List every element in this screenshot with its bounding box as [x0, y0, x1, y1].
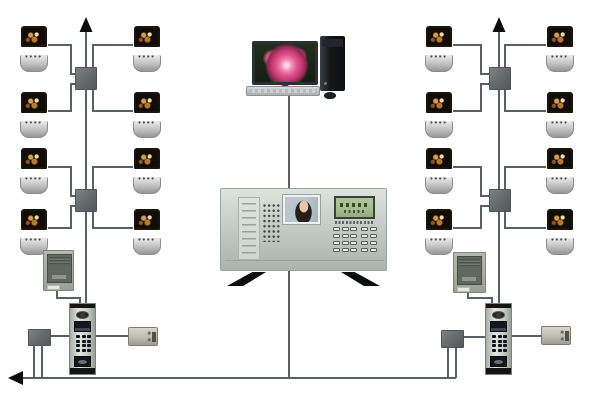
monitor-screen	[21, 148, 47, 169]
card-reader	[490, 356, 507, 367]
monitor-body	[133, 121, 161, 138]
wire-branch	[505, 167, 546, 190]
monitor-screen	[134, 92, 160, 113]
wire-branch	[93, 89, 133, 111]
wire-branch	[453, 84, 490, 111]
wire-branch	[48, 84, 76, 111]
wire-branch	[48, 206, 76, 228]
mouse	[324, 92, 336, 99]
arrow-up-left-riser	[80, 17, 93, 32]
card-reader	[74, 356, 91, 367]
guard-console	[220, 188, 387, 271]
management-computer	[246, 36, 346, 98]
keypad-right-block	[361, 227, 377, 252]
psu-label	[457, 287, 470, 292]
arrow-left-bus	[8, 371, 23, 385]
monitor-screen	[134, 209, 160, 230]
keyboard	[246, 86, 320, 96]
indoor-monitor-unit	[133, 148, 161, 186]
monitor-body	[425, 55, 453, 72]
monitor-body	[546, 121, 574, 138]
wire-branch	[505, 45, 546, 68]
monitor-screen	[426, 209, 452, 230]
monitor-body	[425, 177, 453, 194]
monitor-body	[133, 55, 161, 72]
indoor-monitor-unit	[425, 209, 453, 247]
electric-lock	[128, 327, 158, 346]
monitor-screen	[134, 148, 160, 169]
junction-box	[489, 189, 511, 212]
wire-branch	[453, 167, 490, 196]
monitor-screen	[21, 92, 47, 113]
indoor-monitor-unit	[133, 26, 161, 64]
monitor-body	[425, 238, 453, 255]
monitor-screen	[426, 26, 452, 47]
indoor-monitor-unit	[546, 92, 574, 130]
arrow-up-right-riser	[493, 17, 506, 32]
indoor-monitor-unit	[546, 148, 574, 186]
console-groove	[225, 260, 384, 261]
indoor-monitor-unit	[20, 148, 48, 186]
monitor-body	[133, 238, 161, 255]
monitor-body	[133, 177, 161, 194]
keypad-left-block	[333, 227, 357, 252]
monitor-screen	[21, 26, 47, 47]
wire-branch	[93, 211, 133, 228]
indoor-monitor-unit	[425, 26, 453, 64]
door-station-bottom-strip	[486, 368, 511, 374]
lcd-screen	[336, 198, 373, 217]
entry-junction-box	[28, 329, 51, 346]
monitor-body	[20, 121, 48, 138]
monitor-screen	[134, 26, 160, 47]
electric-lock	[541, 326, 571, 345]
lcd-caption	[335, 221, 374, 224]
door-station-top-strip	[486, 304, 511, 308]
monitor-screen	[547, 209, 573, 230]
indoor-monitor-unit	[20, 209, 48, 247]
indoor-monitor-unit	[20, 26, 48, 64]
monitor-screen	[547, 26, 573, 47]
wire-branch	[453, 206, 490, 228]
camera-lens-icon	[492, 311, 505, 319]
monitor-body	[425, 121, 453, 138]
door-station	[485, 303, 512, 375]
indoor-monitor-unit	[20, 92, 48, 130]
monitor-screen	[426, 92, 452, 113]
door-station-keypad	[75, 335, 92, 352]
wire-branch	[505, 89, 546, 111]
indoor-monitor-unit	[425, 148, 453, 186]
psu-front-panel	[47, 254, 72, 283]
monitor-body	[546, 177, 574, 194]
psu-label	[47, 285, 60, 290]
indoor-monitor-unit	[546, 26, 574, 64]
camera-lens-icon	[76, 311, 89, 319]
console-video-screen	[283, 195, 320, 224]
monitor-screen	[21, 209, 47, 230]
console-label-strip	[238, 197, 260, 260]
speaker-grille	[263, 204, 281, 242]
monitor-screen	[426, 148, 452, 169]
door-station-display	[74, 321, 91, 332]
power-supply-unit	[453, 252, 486, 293]
monitor-body	[20, 177, 48, 194]
wire-branch	[93, 45, 133, 68]
monitor-body	[546, 55, 574, 72]
indoor-monitor-unit	[425, 92, 453, 130]
door-station	[69, 303, 96, 375]
wire-branch	[48, 45, 76, 74]
wire-branch	[453, 45, 490, 74]
indoor-monitor-unit	[133, 92, 161, 130]
console-lcd	[334, 196, 375, 219]
door-station-bottom-strip	[70, 368, 95, 374]
psu-front-panel	[457, 256, 482, 285]
wire-branch	[93, 167, 133, 190]
indoor-monitor-unit	[546, 209, 574, 247]
computer-monitor-rose-wallpaper	[252, 41, 318, 85]
wire-branch	[48, 167, 76, 196]
monitor-body	[546, 238, 574, 255]
junction-box	[75, 67, 97, 90]
indoor-monitor-unit	[133, 209, 161, 247]
power-supply-unit	[43, 250, 74, 291]
monitor-body	[20, 55, 48, 72]
door-station-top-strip	[70, 304, 95, 308]
monitor-screen	[547, 148, 573, 169]
monitor-screen	[547, 92, 573, 113]
entry-junction-box	[441, 330, 464, 348]
intercom-wiring-diagram	[0, 0, 600, 400]
junction-box	[75, 189, 97, 212]
door-station-display	[490, 321, 507, 332]
computer-tower	[320, 36, 345, 91]
door-station-keypad	[491, 335, 508, 352]
junction-box	[489, 67, 511, 90]
console-keypad	[333, 227, 377, 252]
wire-branch	[505, 211, 546, 228]
